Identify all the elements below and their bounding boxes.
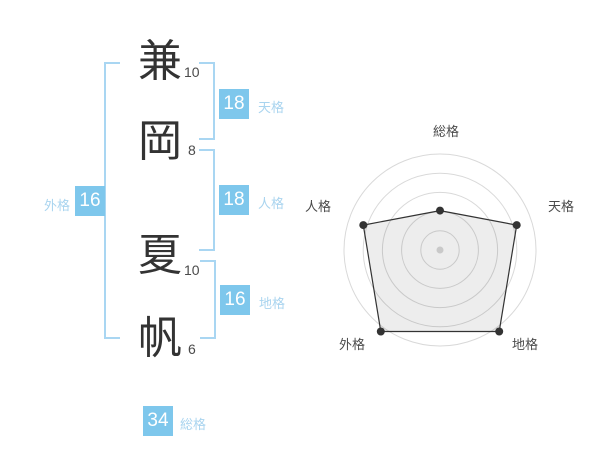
surname-char-1-strokes: 10 xyxy=(184,64,200,80)
chikaku-bracket xyxy=(200,260,216,339)
jinkaku-bracket xyxy=(199,149,215,251)
gaikaku-bracket xyxy=(104,62,120,339)
soukaku-value-badge: 34 xyxy=(143,406,173,436)
given-char-2-strokes: 6 xyxy=(188,341,196,357)
surname-char-2: 岡 xyxy=(136,118,184,166)
given-char-1-strokes: 10 xyxy=(184,262,200,278)
tenkaku-label: 天格 xyxy=(258,97,284,116)
radar-data-point xyxy=(513,221,521,229)
chikaku-label: 地格 xyxy=(259,293,285,312)
tenkaku-value-badge: 18 xyxy=(219,89,249,119)
soukaku-label: 総格 xyxy=(180,414,206,433)
radar-axis-label-1: 総格 xyxy=(433,124,459,139)
given-char-1: 夏 xyxy=(136,232,184,280)
jinkaku-value-badge: 18 xyxy=(219,185,249,215)
radar-data-polygon xyxy=(363,211,516,332)
radar-data-point xyxy=(377,328,385,336)
chikaku-value-badge: 16 xyxy=(220,285,250,315)
radar-axis-label-3: 地格 xyxy=(512,337,538,352)
gaikaku-value-badge: 16 xyxy=(75,186,105,216)
radar-axis-label-4: 外格 xyxy=(339,337,365,352)
given-char-2: 帆 xyxy=(136,315,184,363)
surname-char-1: 兼 xyxy=(136,38,184,86)
radar-axis-label-5: 人格 xyxy=(305,199,331,214)
name-analysis-panel: 兼 10 岡 8 夏 10 帆 6 18 天格 18 人格 16 地格 外格 1… xyxy=(0,0,600,470)
radar-axis-label-2: 天格 xyxy=(548,199,574,214)
radar-chart: 総格天格地格外格人格 xyxy=(295,112,585,362)
surname-char-2-strokes: 8 xyxy=(188,142,196,158)
radar-center-dot xyxy=(437,247,444,254)
tenkaku-bracket xyxy=(199,62,215,140)
jinkaku-label: 人格 xyxy=(258,193,284,212)
radar-data-point xyxy=(495,328,503,336)
gaikaku-label: 外格 xyxy=(30,195,70,214)
radar-data-point xyxy=(359,221,367,229)
radar-data-point xyxy=(436,207,444,215)
